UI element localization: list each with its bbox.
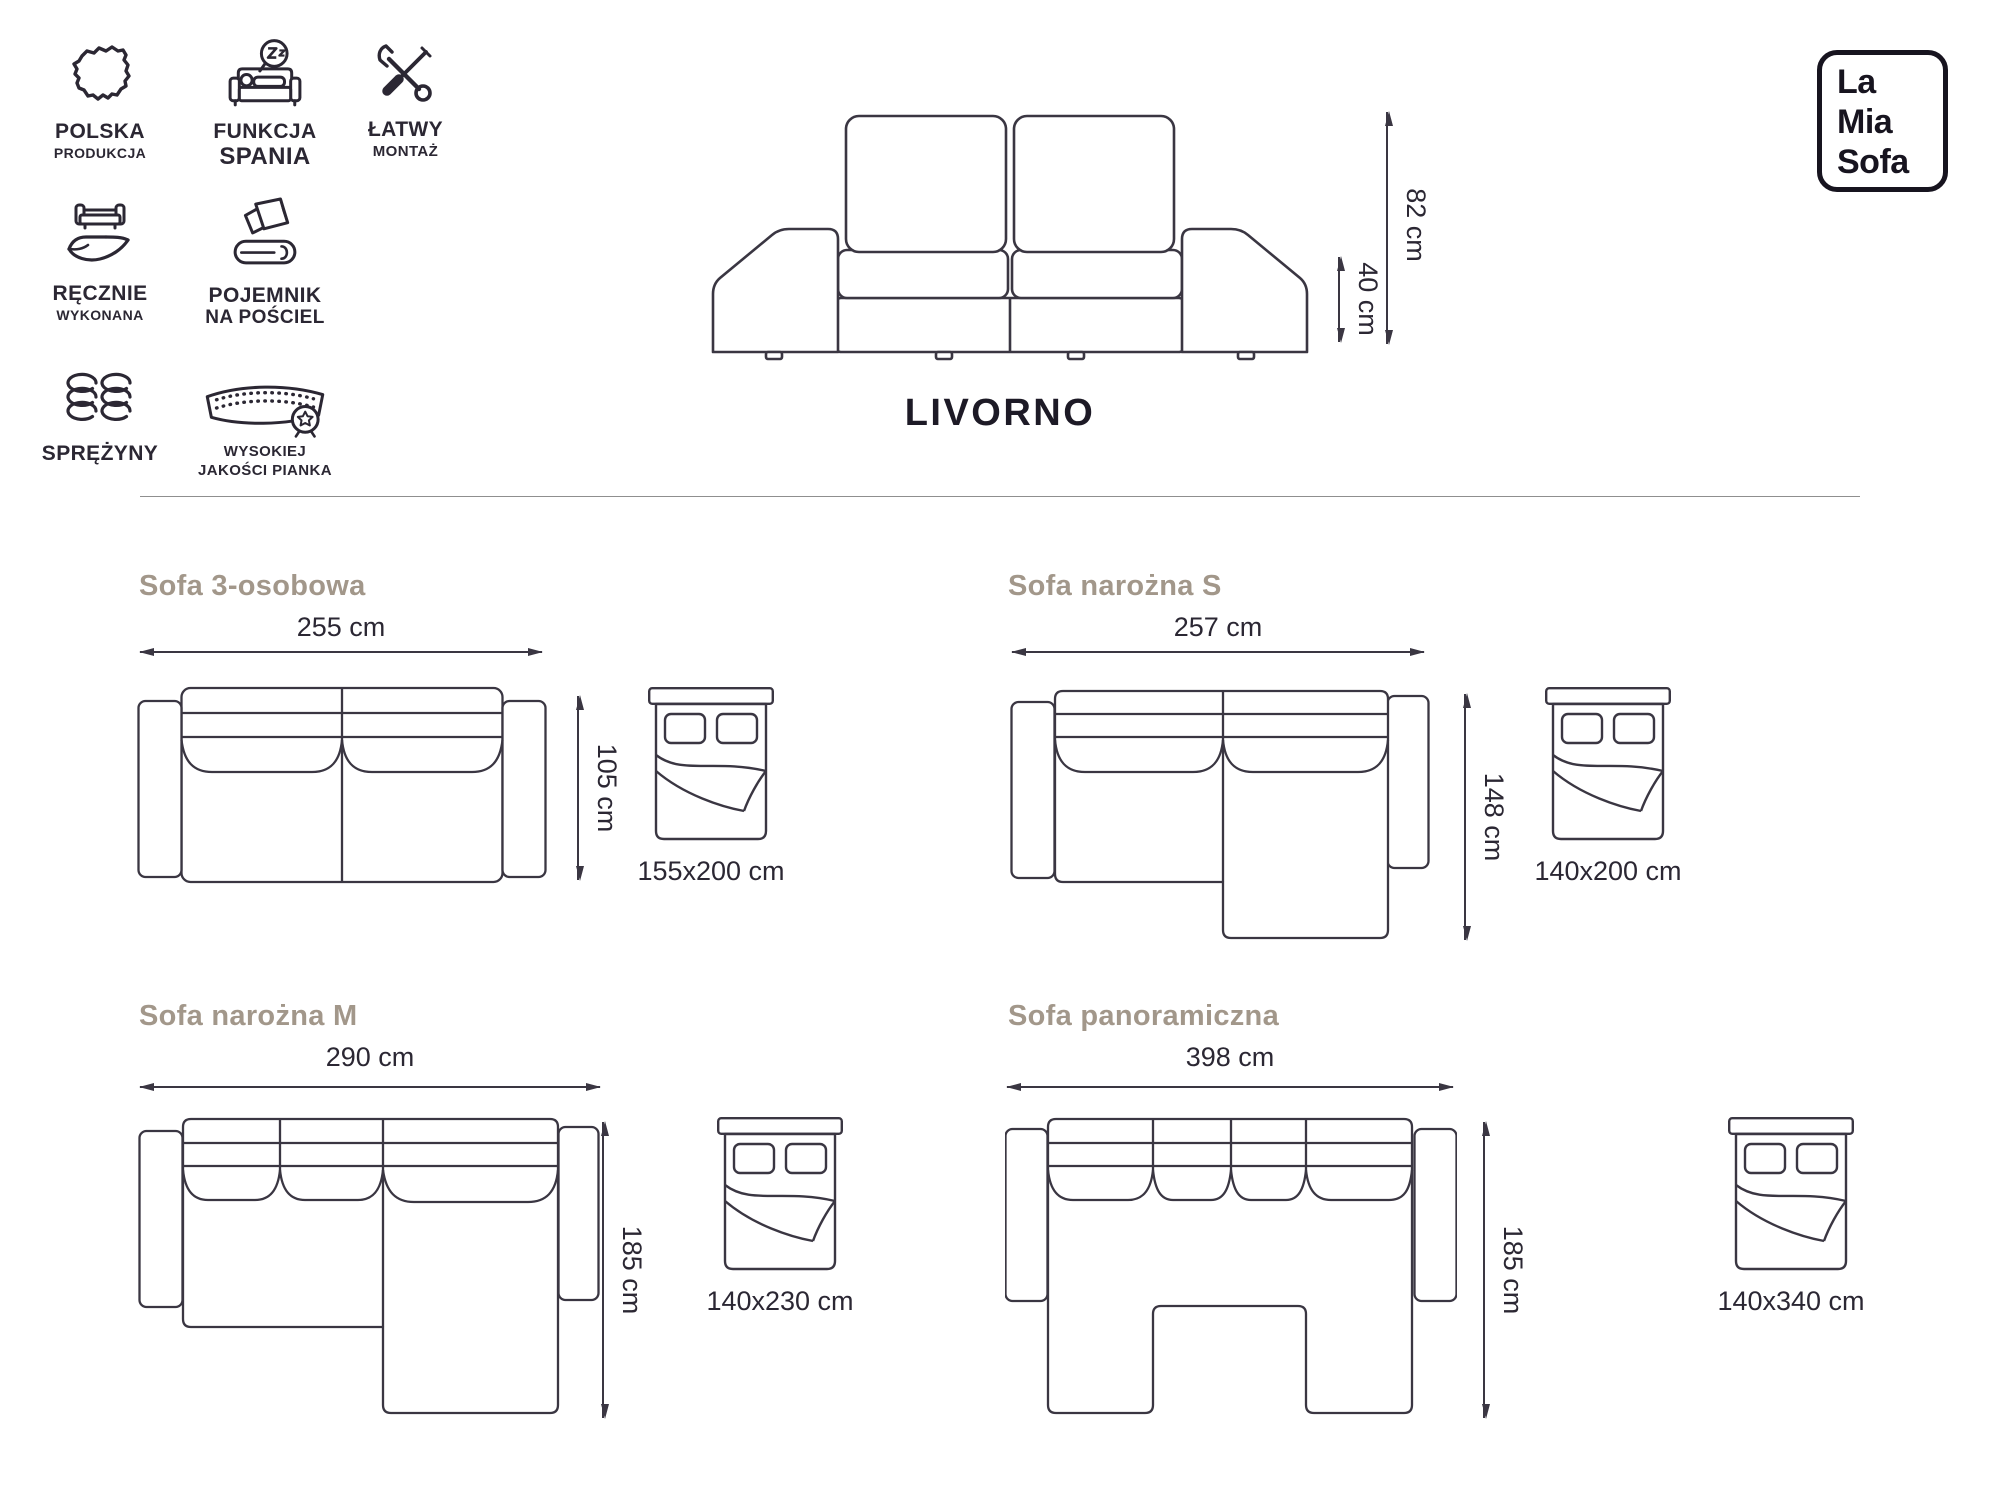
product-name: LIVORNO — [905, 392, 1096, 435]
feature-sublabel: SPANIA — [190, 144, 340, 170]
foam-quality-icon — [199, 376, 331, 438]
logo-line: Sofa — [1837, 142, 1943, 182]
overall-height-arrow — [1386, 112, 1388, 344]
brand-logo: La Mia Sofa — [1817, 50, 1948, 192]
sofa-top-view-panoramic — [1005, 1116, 1457, 1418]
bed-size-icon — [1545, 687, 1671, 841]
feature-bedding-storage: POJEMNIK NA POŚCIEL — [190, 192, 340, 329]
bed-size-icon — [648, 687, 774, 841]
feature-handmade: RĘCZNIE WYKONANA — [30, 194, 170, 323]
feature-foam-quality: WYSOKIEJ JAKOŚCI PIANKA — [182, 376, 348, 479]
feature-sublabel: NA POŚCIEL — [190, 308, 340, 329]
variant-depth-label: 148 cm — [1478, 773, 1509, 862]
variant-width-label: 255 cm — [297, 612, 386, 643]
sofa-front-view — [700, 88, 1320, 362]
variant-depth-arrow — [1483, 1122, 1485, 1418]
variant-depth-arrow — [1464, 694, 1466, 940]
feature-sleep-function: FUNKCJA SPANIA — [190, 34, 340, 170]
feature-sublabel: WYKONANA — [30, 308, 170, 323]
seat-height-label: 40 cm — [1352, 262, 1383, 336]
feature-label: POLSKA — [30, 120, 170, 143]
variant-depth-label: 105 cm — [591, 744, 622, 833]
variant-width-label: 398 cm — [1186, 1042, 1275, 1073]
bedding-storage-icon — [231, 192, 299, 276]
feature-label: WYSOKIEJ — [182, 444, 348, 461]
feature-label: RĘCZNIE — [30, 282, 170, 305]
sofa-top-view-corner-m — [138, 1116, 600, 1418]
bed-size-label: 140x340 cm — [1717, 1286, 1864, 1317]
feature-polish-production: POLSKA PRODUKCJA — [30, 36, 170, 161]
feature-easy-assembly: ŁATWY MONTAŻ — [348, 40, 463, 161]
variant-title: Sofa narożna S — [1008, 570, 1222, 603]
feature-label: POJEMNIK — [190, 284, 340, 307]
feature-label: SPRĘŻYNY — [30, 442, 170, 465]
feature-springs: SPRĘŻYNY — [30, 366, 170, 465]
section-divider — [140, 496, 1860, 497]
feature-sublabel: PRODUKCJA — [30, 146, 170, 161]
easy-assembly-icon — [376, 40, 436, 110]
logo-line: La — [1837, 62, 1943, 102]
variant-width-label: 257 cm — [1174, 612, 1263, 643]
product-spec-sheet: POLSKA PRODUKCJA FUNKCJA SPANIA — [0, 0, 2000, 1500]
handmade-icon — [64, 194, 136, 274]
variant-depth-arrow — [602, 1122, 604, 1418]
bed-size-label: 140x230 cm — [706, 1286, 853, 1317]
variant-width-arrow — [140, 1086, 600, 1088]
sofa-top-view-3-seater — [137, 686, 547, 886]
feature-label: FUNKCJA — [190, 120, 340, 143]
variant-title: Sofa panoramiczna — [1008, 1000, 1279, 1033]
poland-map-icon — [67, 36, 133, 112]
sofa-top-view-corner-s — [1010, 686, 1430, 946]
variant-depth-label: 185 cm — [616, 1226, 647, 1315]
variant-depth-label: 185 cm — [1497, 1226, 1528, 1315]
variant-width-label: 290 cm — [326, 1042, 415, 1073]
overall-height-label: 82 cm — [1400, 188, 1431, 262]
variant-title: Sofa 3-osobowa — [139, 570, 366, 603]
sleep-function-icon — [226, 34, 304, 112]
feature-sublabel: JAKOŚCI PIANKA — [182, 463, 348, 480]
variant-width-arrow — [1007, 1086, 1453, 1088]
bed-size-icon — [1728, 1117, 1854, 1271]
bed-size-label: 140x200 cm — [1534, 856, 1681, 887]
bed-size-icon — [717, 1117, 843, 1271]
variant-width-arrow — [1012, 651, 1424, 653]
variant-width-arrow — [140, 651, 542, 653]
variant-depth-arrow — [577, 696, 579, 880]
variant-title: Sofa narożna M — [139, 1000, 358, 1033]
bed-size-label: 155x200 cm — [637, 856, 784, 887]
springs-icon — [65, 366, 135, 434]
feature-label: ŁATWY — [348, 118, 463, 141]
seat-height-arrow — [1338, 257, 1340, 342]
logo-line: Mia — [1837, 102, 1943, 142]
feature-sublabel: MONTAŻ — [348, 144, 463, 161]
